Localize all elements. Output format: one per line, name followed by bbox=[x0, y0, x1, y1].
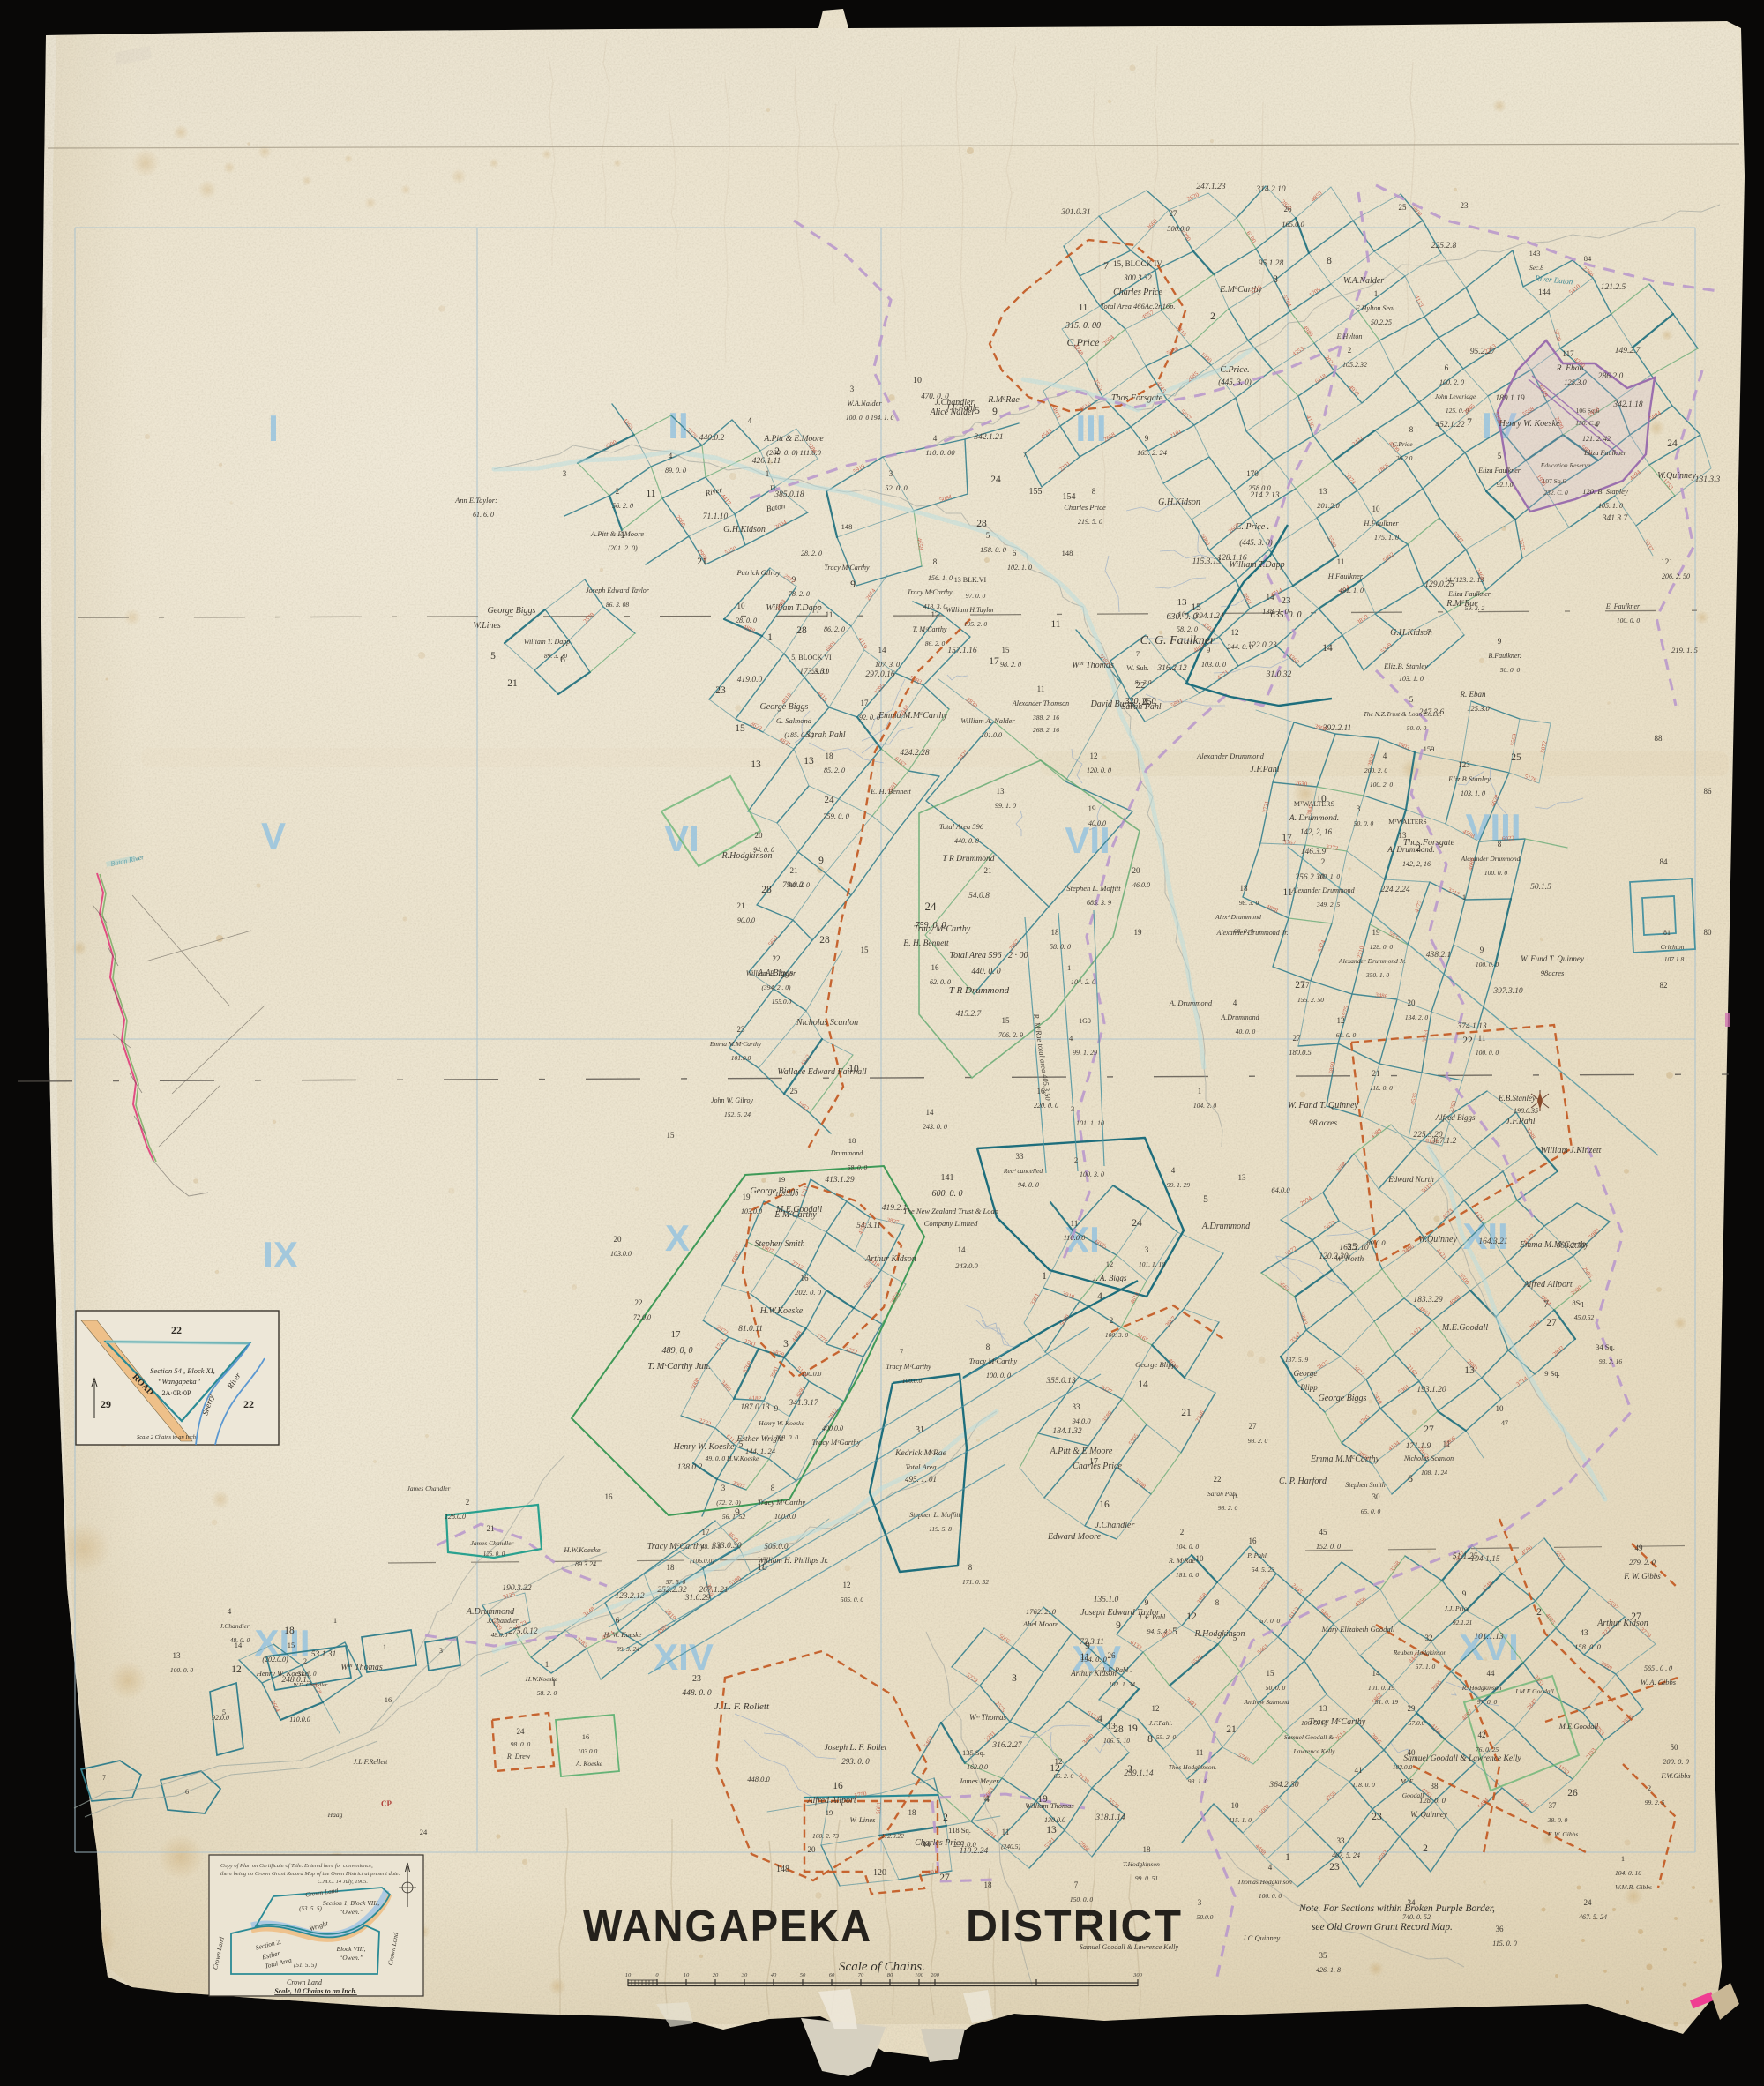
svg-text:470. 0. 0: 470. 0. 0 bbox=[921, 392, 949, 400]
svg-text:4: 4 bbox=[1383, 751, 1387, 760]
svg-text:John Leveridge: John Leveridge bbox=[1435, 393, 1476, 400]
svg-text:40: 40 bbox=[1408, 1748, 1416, 1757]
svg-text:120. B. Stanley: 120. B. Stanley bbox=[1582, 487, 1628, 496]
svg-text:100.0.0: 100.0.0 bbox=[774, 1513, 796, 1521]
svg-text:1762. 2. 0: 1762. 2. 0 bbox=[1026, 1607, 1057, 1616]
svg-text:Alfred Allport: Alfred Allport bbox=[806, 1796, 856, 1806]
svg-text:26: 26 bbox=[1108, 1651, 1117, 1660]
svg-text:T R Drummond: T R Drummond bbox=[949, 985, 1010, 996]
svg-text:142, 2, 16: 142, 2, 16 bbox=[1402, 860, 1431, 868]
svg-text:H.Faulkner: H.Faulkner bbox=[1363, 519, 1399, 527]
svg-text:8: 8 bbox=[933, 557, 938, 566]
svg-text:252.2.32: 252.2.32 bbox=[657, 1586, 687, 1595]
svg-text:128.0.0: 128.0.0 bbox=[445, 1513, 466, 1521]
svg-text:415.2.7: 415.2.7 bbox=[956, 1010, 983, 1019]
svg-text:17: 17 bbox=[989, 656, 999, 667]
svg-text:59. 3. 2: 59. 3. 2 bbox=[1465, 604, 1485, 612]
svg-text:A.Pitt & E.Moore: A.Pitt & E.Moore bbox=[1050, 1447, 1113, 1456]
svg-text:90.0.0: 90.0.0 bbox=[737, 916, 755, 924]
svg-text:100. 2. 0: 100. 2. 0 bbox=[1439, 378, 1464, 386]
svg-text:50. 0. 0: 50. 0. 0 bbox=[1354, 819, 1374, 827]
svg-text:10: 10 bbox=[684, 1972, 690, 1978]
svg-text:M.E.Goodall: M.E.Goodall bbox=[1441, 1323, 1488, 1333]
svg-text:12: 12 bbox=[1152, 1704, 1160, 1713]
svg-text:Sec.8: Sec.8 bbox=[1529, 264, 1543, 272]
svg-text:A.Pitt & E.Moore: A.Pitt & E.Moore bbox=[590, 529, 644, 538]
svg-text:21: 21 bbox=[1226, 1724, 1237, 1735]
svg-text:W.A.Nalder: W.A.Nalder bbox=[1343, 276, 1384, 286]
svg-text:20: 20 bbox=[614, 1235, 623, 1244]
svg-text:18: 18 bbox=[1240, 884, 1249, 893]
svg-text:William A. Nalder: William A. Nalder bbox=[960, 716, 1015, 725]
svg-text:G.H.Kidson: G.H.Kidson bbox=[1158, 497, 1200, 507]
svg-text:16: 16 bbox=[1037, 1087, 1046, 1095]
svg-text:27: 27 bbox=[1424, 1424, 1434, 1435]
svg-text:89.3.24: 89.3.24 bbox=[575, 1560, 596, 1568]
svg-text:W. Sub.: W. Sub. bbox=[1126, 664, 1148, 672]
svg-text:115.3.13: 115.3.13 bbox=[1192, 557, 1222, 566]
svg-text:106. 5. 10: 106. 5. 10 bbox=[1301, 1719, 1327, 1727]
svg-text:125.3.0: 125.3.0 bbox=[1467, 704, 1490, 713]
svg-text:198.0.35: 198.0.35 bbox=[1514, 1107, 1538, 1115]
svg-text:11: 11 bbox=[646, 489, 655, 499]
svg-text:100. 0. 0 194. 1. 0: 100. 0. 0 194. 1. 0 bbox=[846, 414, 894, 422]
svg-text:202. 0. 0: 202. 0. 0 bbox=[795, 1288, 822, 1297]
svg-text:18: 18 bbox=[1143, 1845, 1152, 1854]
svg-text:43: 43 bbox=[1581, 1628, 1589, 1637]
svg-text:(72. 2. 0): (72. 2. 0) bbox=[716, 1499, 741, 1507]
svg-text:8: 8 bbox=[1498, 840, 1502, 849]
svg-text:28: 28 bbox=[761, 885, 772, 895]
svg-text:10: 10 bbox=[848, 1064, 859, 1074]
svg-text:16: 16 bbox=[1249, 1536, 1258, 1545]
svg-text:99. 0. 51: 99. 0. 51 bbox=[1135, 1874, 1158, 1882]
svg-text:41: 41 bbox=[1355, 1766, 1363, 1775]
svg-text:214.2.13: 214.2.13 bbox=[1250, 491, 1280, 500]
svg-text:16: 16 bbox=[931, 963, 940, 972]
svg-text:100.0.0: 100.0.0 bbox=[902, 1377, 923, 1385]
svg-text:J.F.Pahl: J.F.Pahl bbox=[1506, 1117, 1535, 1126]
svg-text:45: 45 bbox=[1319, 1528, 1328, 1536]
svg-text:22: 22 bbox=[243, 1398, 254, 1410]
svg-text:105. 1. 0: 105. 1. 0 bbox=[1598, 502, 1623, 510]
svg-text:385.0.18: 385.0.18 bbox=[774, 490, 804, 499]
svg-text:105.2.32: 105.2.32 bbox=[1342, 361, 1367, 369]
svg-text:Charles Price: Charles Price bbox=[1113, 288, 1162, 297]
svg-text:John W. Gilroy: John W. Gilroy bbox=[711, 1096, 754, 1104]
svg-text:8: 8 bbox=[1092, 487, 1096, 496]
svg-text:23: 23 bbox=[1372, 1812, 1382, 1822]
svg-text:31.0.32: 31.0.32 bbox=[1266, 670, 1292, 679]
svg-text:24: 24 bbox=[1667, 438, 1678, 449]
svg-text:297.0.16: 297.0.16 bbox=[865, 670, 895, 679]
svg-text:60. 0. 0: 60. 0. 0 bbox=[1336, 1031, 1357, 1039]
svg-text:21: 21 bbox=[1181, 1408, 1192, 1418]
svg-text:7: 7 bbox=[1136, 649, 1140, 658]
svg-text:31: 31 bbox=[916, 1425, 924, 1435]
svg-text:9: 9 bbox=[774, 1404, 779, 1413]
svg-text:J. L. F. Rollett: J. L. F. Rollett bbox=[714, 1701, 770, 1712]
svg-text:424.2.28: 424.2.28 bbox=[900, 749, 930, 758]
svg-text:102. 1. 0: 102. 1. 0 bbox=[1007, 564, 1032, 572]
svg-text:99. 1. 0: 99. 1. 0 bbox=[995, 802, 1016, 810]
svg-text:P. Pahl.: P. Pahl. bbox=[1246, 1551, 1268, 1559]
svg-text:5681: 5681 bbox=[875, 1801, 883, 1814]
svg-text:70: 70 bbox=[858, 1972, 864, 1978]
svg-text:495. 1. 01: 495. 1. 01 bbox=[905, 1475, 937, 1484]
svg-text:125. 0. 0: 125. 0. 0 bbox=[483, 1551, 505, 1558]
svg-text:8: 8 bbox=[1327, 256, 1332, 266]
svg-text:100. 0. 0: 100. 0. 0 bbox=[170, 1666, 194, 1674]
svg-text:137. 5. 9: 137. 5. 9 bbox=[1285, 1356, 1309, 1364]
svg-text:William H.Taylor: William H.Taylor bbox=[946, 606, 995, 614]
svg-text:2A·0R·0P: 2A·0R·0P bbox=[162, 1389, 191, 1397]
svg-text:184.1.32: 184.1.32 bbox=[1052, 1427, 1082, 1436]
svg-text:16: 16 bbox=[582, 1732, 590, 1741]
svg-text:110.0.0: 110.0.0 bbox=[289, 1716, 310, 1723]
svg-text:42: 42 bbox=[1478, 1731, 1486, 1739]
svg-text:A. Drummond.: A. Drummond. bbox=[1289, 814, 1339, 823]
svg-text:50: 50 bbox=[800, 1972, 806, 1978]
svg-text:Sarah Pahl: Sarah Pahl bbox=[1207, 1490, 1237, 1498]
svg-text:Scale 2 Chains to an Inch: Scale 2 Chains to an Inch bbox=[137, 1434, 196, 1440]
svg-text:56. 1. 52: 56. 1. 52 bbox=[722, 1513, 746, 1521]
svg-text:13: 13 bbox=[1319, 487, 1328, 496]
svg-text:A.Pitt & E.Moore: A.Pitt & E.Moore bbox=[763, 435, 823, 444]
svg-text:D: D bbox=[770, 484, 775, 492]
svg-text:53.1.31: 53.1.31 bbox=[311, 1650, 337, 1659]
svg-text:740. 0. 52: 740. 0. 52 bbox=[1402, 1913, 1431, 1921]
svg-text:57.0.0: 57.0.0 bbox=[1409, 1719, 1425, 1727]
svg-text:100. 0. 0: 100. 0. 0 bbox=[1617, 617, 1641, 624]
svg-text:there being no Crown Grant Rec: there being no Crown Grant Record Map of… bbox=[220, 1871, 400, 1877]
svg-text:XIV: XIV bbox=[654, 1636, 714, 1678]
svg-text:106. 5. 10: 106. 5. 10 bbox=[1103, 1737, 1130, 1745]
svg-text:440.0.2: 440.0.2 bbox=[699, 434, 725, 443]
svg-text:19: 19 bbox=[1372, 928, 1381, 937]
svg-text:40.0.0: 40.0.0 bbox=[1088, 819, 1106, 827]
svg-text:164.3.21: 164.3.21 bbox=[1478, 1237, 1507, 1246]
svg-text:259.1.14: 259.1.14 bbox=[1124, 1769, 1154, 1778]
svg-text:104. 0. 10: 104. 0. 10 bbox=[1615, 1869, 1641, 1877]
svg-text:21: 21 bbox=[790, 866, 798, 875]
svg-text:6: 6 bbox=[1013, 549, 1017, 557]
svg-text:2: 2 bbox=[943, 1813, 948, 1823]
svg-text:Eliza Faulkner: Eliza Faulkner bbox=[1447, 590, 1491, 598]
svg-text:1: 1 bbox=[1067, 963, 1071, 972]
svg-text:T. MᶜCarthy: T. MᶜCarthy bbox=[913, 625, 947, 633]
svg-text:12: 12 bbox=[931, 610, 939, 619]
svg-text:48. 0. 0: 48. 0. 0 bbox=[230, 1636, 250, 1644]
svg-text:7: 7 bbox=[1074, 1880, 1079, 1889]
svg-text:21: 21 bbox=[507, 678, 518, 689]
svg-text:2: 2 bbox=[1648, 1783, 1651, 1792]
svg-text:103.0.0: 103.0.0 bbox=[741, 1207, 762, 1215]
svg-text:64.0.0: 64.0.0 bbox=[1271, 1185, 1290, 1194]
svg-text:275.0.12: 275.0.12 bbox=[508, 1627, 538, 1636]
svg-text:175. 1. 0: 175. 1. 0 bbox=[1374, 534, 1399, 542]
svg-text:99. 1. 29: 99. 1. 29 bbox=[1073, 1049, 1097, 1057]
svg-text:James Chandler: James Chandler bbox=[407, 1484, 451, 1492]
svg-text:33: 33 bbox=[1073, 1402, 1081, 1411]
svg-text:The N.Z.Trust & Loan Co.Ld.: The N.Z.Trust & Loan Co.Ld. bbox=[1364, 710, 1442, 718]
svg-text:E.Hylton: E.Hylton bbox=[1336, 333, 1363, 340]
svg-text:1G0: 1G0 bbox=[1079, 1017, 1091, 1025]
svg-text:55. 2. 0: 55. 2. 0 bbox=[1156, 1733, 1177, 1741]
svg-text:Alexander Drummond Jr.: Alexander Drummond Jr. bbox=[1338, 957, 1406, 965]
svg-text:4: 4 bbox=[933, 434, 938, 443]
svg-text:A. Drummond.: A. Drummond. bbox=[1387, 845, 1434, 854]
svg-text:364.2.30: 364.2.30 bbox=[1268, 1781, 1299, 1790]
svg-text:William J.Kinzett: William J.Kinzett bbox=[1541, 1146, 1602, 1155]
svg-text:89.0.0: 89.0.0 bbox=[1366, 1238, 1386, 1247]
svg-text:3: 3 bbox=[1012, 1673, 1017, 1684]
svg-text:243. 0. 0: 243. 0. 0 bbox=[923, 1123, 947, 1131]
svg-text:W. North: W. North bbox=[1335, 1254, 1364, 1263]
svg-text:Alexᵈ Drummond: Alexᵈ Drummond bbox=[1215, 913, 1261, 921]
svg-text:143: 143 bbox=[1529, 249, 1541, 258]
svg-text:155: 155 bbox=[1029, 487, 1043, 497]
svg-text:467. 5. 24: 467. 5. 24 bbox=[1579, 1913, 1607, 1921]
svg-text:5: 5 bbox=[490, 651, 496, 662]
svg-text:13: 13 bbox=[1319, 1704, 1328, 1713]
svg-text:Total Area 466Ac.2r.16p.: Total Area 466Ac.2r.16p. bbox=[1101, 302, 1176, 310]
svg-text:448.0.0: 448.0.0 bbox=[747, 1775, 770, 1783]
svg-text:50.0.0: 50.0.0 bbox=[1197, 1913, 1214, 1921]
svg-text:195. 2. 0: 195. 2. 0 bbox=[964, 620, 988, 628]
svg-text:419.0.0: 419.0.0 bbox=[737, 676, 763, 684]
svg-text:Tracy McCarthy: Tracy McCarthy bbox=[647, 1541, 705, 1551]
svg-text:E MᶜCarthy: E MᶜCarthy bbox=[774, 1210, 817, 1220]
svg-text:54. 5. 23: 54. 5. 23 bbox=[1252, 1566, 1275, 1574]
svg-text:52. 0. 0: 52. 0. 0 bbox=[885, 483, 908, 492]
svg-text:118 Sq.: 118 Sq. bbox=[948, 1826, 971, 1835]
svg-text:11: 11 bbox=[1002, 1828, 1010, 1836]
svg-text:R. Hodgkinson: R. Hodgkinson bbox=[1461, 1684, 1502, 1692]
svg-text:4: 4 bbox=[669, 452, 673, 460]
svg-text:72,0,0: 72,0,0 bbox=[633, 1313, 651, 1321]
svg-text:20: 20 bbox=[1132, 866, 1141, 875]
svg-text:54.0.8: 54.0.8 bbox=[968, 892, 990, 901]
svg-text:Joseph L. F. Rollet: Joseph L. F. Rollet bbox=[825, 1744, 887, 1753]
svg-text:14: 14 bbox=[1372, 1669, 1381, 1678]
svg-text:12: 12 bbox=[1106, 1260, 1114, 1268]
svg-text:98 acres: 98 acres bbox=[1309, 1119, 1337, 1128]
svg-text:342.1.18: 342.1.18 bbox=[1612, 400, 1643, 409]
svg-text:5: 5 bbox=[1233, 1634, 1237, 1642]
svg-text:24: 24 bbox=[925, 900, 938, 913]
svg-text:Tracy MᶜCarthy: Tracy MᶜCarthy bbox=[886, 1363, 931, 1371]
svg-text:Tracy MᶜCarthy: Tracy MᶜCarthy bbox=[907, 588, 953, 596]
svg-text:46.0.0: 46.0.0 bbox=[1132, 881, 1150, 889]
svg-text:100. 0. 0: 100. 0. 0 bbox=[1259, 1892, 1282, 1900]
svg-text:4182: 4182 bbox=[749, 1394, 762, 1402]
svg-text:Joseph Edward Taylor: Joseph Edward Taylor bbox=[586, 587, 650, 594]
svg-text:706. 2. 9: 706. 2. 9 bbox=[998, 1031, 1023, 1039]
svg-text:23: 23 bbox=[715, 685, 726, 696]
svg-text:98. 2. 0: 98. 2. 0 bbox=[1000, 661, 1021, 669]
svg-text:160. 2. 73: 160. 2. 73 bbox=[812, 1832, 839, 1840]
svg-text:102. 1. 34: 102. 1. 34 bbox=[1109, 1680, 1135, 1688]
svg-text:19: 19 bbox=[778, 1175, 786, 1184]
svg-text:6022: 6022 bbox=[1502, 834, 1515, 842]
svg-text:141: 141 bbox=[941, 1173, 954, 1183]
svg-text:James Meyer: James Meyer bbox=[959, 1776, 999, 1785]
svg-text:45.0.52: 45.0.52 bbox=[1574, 1313, 1595, 1321]
svg-text:“Owen.”: “Owen.” bbox=[339, 1954, 363, 1962]
svg-text:11: 11 bbox=[1079, 303, 1088, 313]
svg-text:118. 0. 0: 118. 0. 0 bbox=[1370, 1084, 1393, 1092]
svg-text:9: 9 bbox=[850, 579, 856, 590]
svg-text:15: 15 bbox=[288, 1641, 295, 1649]
svg-text:17: 17 bbox=[702, 1528, 711, 1536]
svg-text:88: 88 bbox=[1655, 734, 1663, 743]
svg-text:349. 2. 5: 349. 2. 5 bbox=[1316, 901, 1341, 908]
svg-text:467. 5. 24: 467. 5. 24 bbox=[1332, 1851, 1360, 1859]
svg-text:320. 0. 0: 320. 0. 0 bbox=[1125, 697, 1156, 707]
svg-text:29: 29 bbox=[1408, 1704, 1416, 1713]
svg-text:1: 1 bbox=[1042, 1271, 1047, 1282]
svg-text:CP: CP bbox=[381, 1799, 392, 1808]
svg-text:H.W.Koeske: H.W.Koeske bbox=[563, 1545, 600, 1554]
svg-text:J. F. Pahl: J. F. Pahl bbox=[1139, 1613, 1166, 1621]
svg-text:W. Fund T. Quinney: W. Fund T. Quinney bbox=[1521, 954, 1584, 963]
svg-text:4: 4 bbox=[1233, 998, 1237, 1007]
svg-text:50.2.25: 50.2.25 bbox=[1371, 318, 1392, 326]
svg-text:W. A. Gibbs: W. A. Gibbs bbox=[1641, 1678, 1677, 1686]
svg-text:14: 14 bbox=[926, 1108, 935, 1117]
svg-text:2: 2 bbox=[1110, 1316, 1114, 1325]
svg-text:17: 17 bbox=[1302, 981, 1311, 990]
svg-text:101. 0. 19: 101. 0. 19 bbox=[1368, 1684, 1394, 1692]
svg-text:28. 2. 0: 28. 2. 0 bbox=[801, 550, 822, 557]
svg-text:Alexander Drummond: Alexander Drummond bbox=[1196, 751, 1265, 760]
svg-text:Ann E.Taylor:: Ann E.Taylor: bbox=[454, 496, 497, 505]
svg-text:5: 5 bbox=[1203, 1194, 1208, 1205]
svg-text:286.2.0: 286.2.0 bbox=[1598, 372, 1624, 381]
svg-text:Alfred Biggs: Alfred Biggs bbox=[1435, 1113, 1476, 1122]
svg-text:426.1.11: 426.1.11 bbox=[752, 457, 781, 466]
svg-text:149.2.7: 149.2.7 bbox=[1615, 347, 1641, 355]
svg-text:Scale of Chains.: Scale of Chains. bbox=[839, 1960, 925, 1974]
svg-text:J.F.Pahl: J.F.Pahl bbox=[1250, 765, 1279, 774]
svg-text:50.1.5: 50.1.5 bbox=[1530, 883, 1551, 892]
svg-text:92.1.0: 92.1.0 bbox=[1497, 481, 1514, 489]
svg-text:J. A. Biggs: J. A. Biggs bbox=[1093, 1274, 1127, 1282]
svg-text:18: 18 bbox=[984, 1880, 993, 1889]
svg-text:156. 1. 0: 156. 1. 0 bbox=[928, 574, 953, 582]
svg-text:50. 0. 0: 50. 0. 0 bbox=[1266, 1684, 1286, 1692]
svg-text:2: 2 bbox=[616, 487, 620, 496]
svg-text:1: 1 bbox=[545, 1660, 549, 1669]
svg-text:1: 1 bbox=[383, 1643, 386, 1651]
svg-text:32: 32 bbox=[1425, 1634, 1433, 1642]
svg-text:2: 2 bbox=[1210, 311, 1215, 322]
svg-text:(51. 5. 5): (51. 5. 5) bbox=[294, 1962, 317, 1969]
svg-text:120. 0. 0: 120. 0. 0 bbox=[1087, 766, 1111, 774]
svg-text:58. 0. 0: 58. 0. 0 bbox=[1050, 943, 1071, 951]
svg-text:4: 4 bbox=[1268, 1863, 1273, 1872]
svg-text:27: 27 bbox=[1249, 1422, 1258, 1431]
svg-text:Stephen L. Moffitt: Stephen L. Moffitt bbox=[909, 1511, 960, 1519]
svg-text:57. 0. 0: 57. 0. 0 bbox=[1260, 1617, 1281, 1625]
svg-text:28: 28 bbox=[976, 519, 987, 529]
svg-text:W. Fand T. Quinney: W. Fand T. Quinney bbox=[1288, 1101, 1358, 1110]
svg-text:16: 16 bbox=[833, 1781, 843, 1791]
svg-text:(201. 2. 0): (201. 2. 0) bbox=[608, 544, 638, 552]
svg-text:98acres: 98acres bbox=[1541, 968, 1565, 977]
svg-text:138. 1. 0: 138. 1. 0 bbox=[1262, 607, 1289, 616]
svg-text:Nicholas Scanlon: Nicholas Scanlon bbox=[796, 1018, 858, 1028]
svg-text:142, 2, 16: 142, 2, 16 bbox=[1300, 827, 1333, 836]
svg-text:1: 1 bbox=[1285, 1852, 1290, 1863]
svg-text:3: 3 bbox=[1071, 1104, 1074, 1113]
svg-text:115. 1. 0: 115. 1. 0 bbox=[1229, 1816, 1252, 1824]
svg-text:100. 2. 0: 100. 2. 0 bbox=[1370, 781, 1394, 789]
svg-text:Stephen L. Moffitt: Stephen L. Moffitt bbox=[1066, 884, 1121, 893]
svg-text:7: 7 bbox=[1427, 628, 1431, 637]
svg-text:148: 148 bbox=[776, 1865, 789, 1874]
svg-text:6: 6 bbox=[185, 1788, 189, 1796]
svg-text:13: 13 bbox=[173, 1651, 182, 1660]
svg-text:20: 20 bbox=[808, 1845, 817, 1854]
svg-text:104. 0. 0: 104. 0. 0 bbox=[1176, 1543, 1200, 1551]
svg-text:92. 0. 0: 92. 0. 0 bbox=[859, 714, 880, 722]
svg-text:13: 13 bbox=[1177, 597, 1188, 608]
svg-text:18: 18 bbox=[284, 1626, 295, 1636]
svg-text:2: 2 bbox=[1536, 1607, 1542, 1618]
svg-text:81: 81 bbox=[1663, 929, 1671, 937]
svg-text:Crown Land: Crown Land bbox=[287, 1978, 323, 1986]
svg-text:4: 4 bbox=[1595, 420, 1599, 429]
svg-text:128.1.16: 128.1.16 bbox=[1217, 554, 1247, 563]
svg-text:George Biggs: George Biggs bbox=[488, 606, 536, 616]
svg-text:93. 2. 16: 93. 2. 16 bbox=[1599, 1357, 1623, 1365]
svg-text:49. 0. 0 H.W.Koeske: 49. 0. 0 H.W.Koeske bbox=[706, 1454, 759, 1462]
svg-text:T R Drummond: T R Drummond bbox=[943, 855, 995, 864]
svg-text:8: 8 bbox=[1409, 425, 1414, 434]
svg-text:194. 0. 0: 194. 0. 0 bbox=[1080, 1655, 1108, 1664]
svg-text:206. 2. 50: 206. 2. 50 bbox=[1662, 572, 1690, 580]
svg-text:100. 0. 0: 100. 0. 0 bbox=[1476, 961, 1499, 968]
svg-text:134. 2. 0: 134. 2. 0 bbox=[1405, 1013, 1429, 1021]
svg-text:18: 18 bbox=[1051, 928, 1060, 937]
svg-text:(106.0.0): (106.0.0) bbox=[690, 1557, 714, 1565]
svg-text:10: 10 bbox=[1178, 610, 1187, 619]
svg-text:R. Drew: R. Drew bbox=[506, 1753, 531, 1761]
svg-text:J. F. Pahl .: J. F. Pahl . bbox=[1102, 1666, 1132, 1674]
svg-text:Blipp: Blipp bbox=[1300, 1383, 1318, 1392]
svg-text:2: 2 bbox=[1423, 1843, 1428, 1854]
svg-text:44: 44 bbox=[1487, 1669, 1496, 1678]
svg-text:1: 1 bbox=[767, 632, 773, 643]
svg-text:Andrew Salmond: Andrew Salmond bbox=[1243, 1698, 1289, 1706]
svg-text:115. 0. 0: 115. 0. 0 bbox=[1492, 1940, 1516, 1948]
svg-text:101.0.0: 101.0.0 bbox=[731, 1054, 751, 1062]
svg-text:Drummond: Drummond bbox=[830, 1149, 863, 1157]
svg-text:89. 3. 24: 89. 3. 24 bbox=[617, 1645, 640, 1653]
svg-text:see Old Crown Grant Record Map: see Old Crown Grant Record Map. bbox=[1312, 1922, 1453, 1933]
svg-text:107. 3. 0: 107. 3. 0 bbox=[875, 661, 900, 669]
svg-text:31.0.29: 31.0.29 bbox=[684, 1594, 711, 1603]
svg-text:Total Area 596: Total Area 596 bbox=[939, 822, 984, 831]
svg-text:440. 0. 0: 440. 0. 0 bbox=[954, 837, 979, 845]
svg-text:374.1.13: 374.1.13 bbox=[1456, 1022, 1487, 1031]
svg-text:600. 0. 0: 600. 0. 0 bbox=[932, 1189, 963, 1199]
svg-text:11: 11 bbox=[1478, 1034, 1486, 1043]
svg-text:86. 3. 08: 86. 3. 08 bbox=[606, 601, 630, 609]
svg-text:12: 12 bbox=[1186, 1611, 1197, 1622]
